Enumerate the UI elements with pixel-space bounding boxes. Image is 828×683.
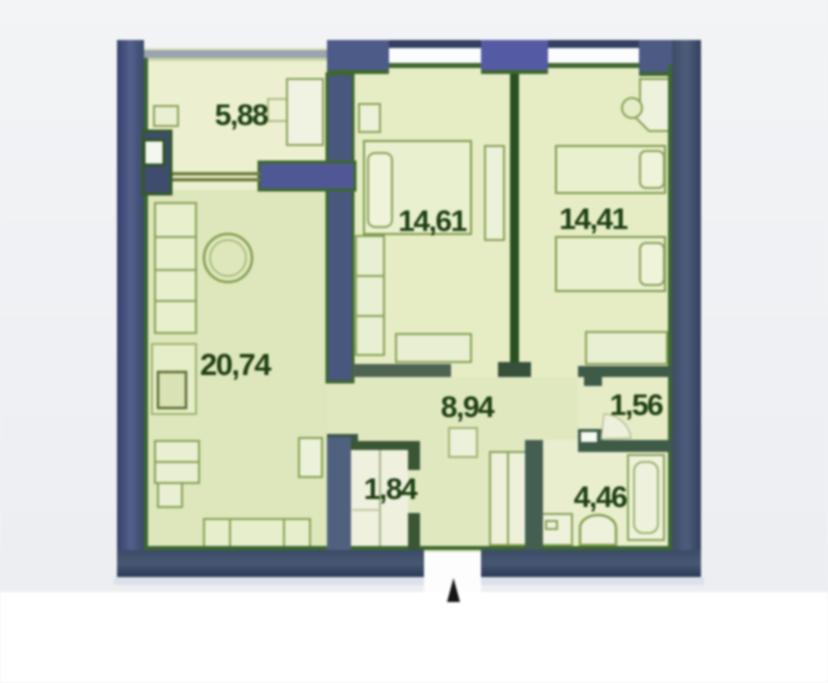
svg-text:1,56: 1,56 <box>610 389 663 422</box>
svg-text:14,61: 14,61 <box>398 205 466 238</box>
svg-text:1,84: 1,84 <box>364 473 418 506</box>
svg-text:14,41: 14,41 <box>559 203 627 236</box>
svg-text:8,94: 8,94 <box>441 391 495 424</box>
svg-text:20,74: 20,74 <box>200 347 272 382</box>
svg-text:4,46: 4,46 <box>574 481 627 514</box>
svg-text:5,88: 5,88 <box>215 99 268 132</box>
